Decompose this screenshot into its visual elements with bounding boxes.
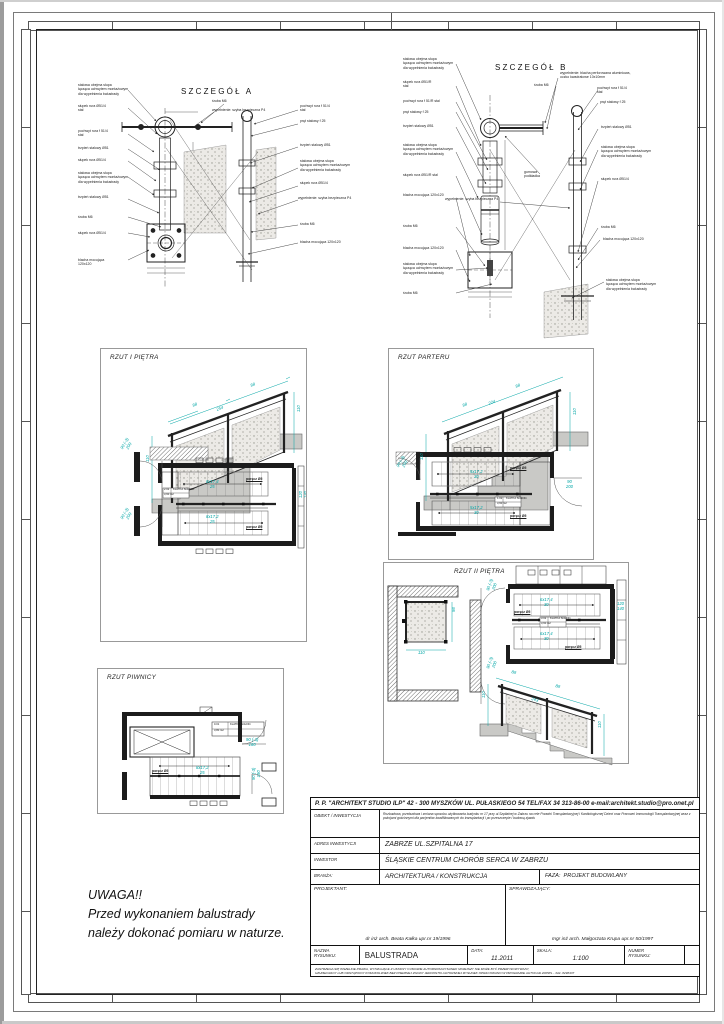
panel-title-floor2: RZUT II PIĘTRA	[454, 568, 505, 575]
panel-title-basement: RZUT PIWNICY	[107, 674, 156, 681]
warning-note: UWAGA!! Przed wykonaniem balustrady nale…	[88, 886, 285, 942]
branza-label: BRANŻA:	[311, 870, 379, 884]
warning-note-line3: należy dokonać pomiaru w naturze.	[88, 924, 285, 943]
fold-mark	[391, 13, 392, 30]
panel-title-floor1: RZUT I PIĘTRA	[110, 354, 159, 361]
warning-note-line2: Przed wykonaniem balustrady	[88, 905, 285, 924]
adres-value: ZABRZE UL.SZPITALNA 17	[379, 838, 699, 853]
data-value: 11.2011	[471, 953, 533, 962]
projektant-label: PROJEKTANT:	[314, 887, 502, 892]
obiekt-label: OBIEKT / INWESTYCJA	[311, 810, 379, 837]
projektant-name: dr inż arch. Beata Kałka upr.nr 19/1996	[314, 937, 502, 943]
panel-rzut-i-pietra: RZUT I PIĘTRA	[100, 348, 307, 642]
skala-cell: SKALA: 1:100	[533, 946, 625, 964]
ruler-left	[21, 29, 31, 995]
warning-note-line1: UWAGA!!	[88, 886, 285, 905]
numer-value-box	[684, 946, 699, 964]
scan-edge-top	[0, 0, 724, 2]
faza-cell: FAZA: PROJEKT BUDOWLANY	[539, 870, 699, 884]
projektant-cell: PROJEKTANT: dr inż arch. Beata Kałka upr…	[311, 885, 505, 945]
panel-rzut-ii-pietra: RZUT II PIĘTRA	[383, 562, 629, 764]
faza-value: PROJEKT BUDOWLANY	[564, 873, 627, 879]
drawing-name-value: BALUSTRADA	[359, 946, 467, 964]
inwestor-value: ŚLĄSKIE CENTRUM CHORÓB SERCA W ZABRZU	[379, 854, 699, 869]
branza-value: ARCHITEKTURA / KONSTRUKCJA	[379, 870, 539, 884]
detail-b-title: SZCZEGÓŁ B	[495, 63, 568, 72]
data-label: DATA:	[471, 948, 483, 953]
nazwa-label: NAZWA RYSUNKU:	[311, 946, 359, 964]
adres-label: ADRES INWESTYCJI	[311, 838, 379, 853]
obiekt-value: Rozbudowa, przebudowa i zmiana sposobu u…	[379, 810, 699, 837]
panel-rzut-parteru: RZUT PARTERU	[388, 348, 594, 560]
company-line: P. P. "ARCHITEKT STUDIO ILP" 42 - 300 MY…	[311, 800, 694, 807]
numer-label: NUMER RYSUNKU:	[624, 946, 684, 964]
title-block: P. P. "ARCHITEKT STUDIO ILP" 42 - 300 MY…	[310, 797, 700, 977]
skala-label: SKALA:	[537, 948, 552, 953]
sprawdzajacy-name: mgr inż arch. Małgorzata Krupa upr.nr 50…	[509, 937, 696, 943]
sprawdzajacy-cell: SPRAWDZAJĄCY: mgr inż arch. Małgorzata K…	[505, 885, 699, 945]
panel-title-ground: RZUT PARTERU	[398, 354, 450, 361]
sprawdzajacy-label: SPRAWDZAJĄCY:	[509, 887, 696, 892]
disclaimer-line2: UZUPEŁNIANY LUB ODSTĄPIONY KOMUKOLWIEK B…	[311, 971, 699, 975]
inwestor-label: INWESTOR	[311, 854, 379, 869]
detail-a-title: SZCZEGÓŁ A	[181, 87, 253, 96]
skala-value: 1:100	[537, 953, 625, 962]
faza-label: FAZA:	[545, 873, 560, 879]
scan-edge-left	[0, 0, 4, 1024]
panel-rzut-piwnicy: RZUT PIWNICY	[97, 668, 284, 814]
data-cell: DATA: 11.2011	[467, 946, 533, 964]
